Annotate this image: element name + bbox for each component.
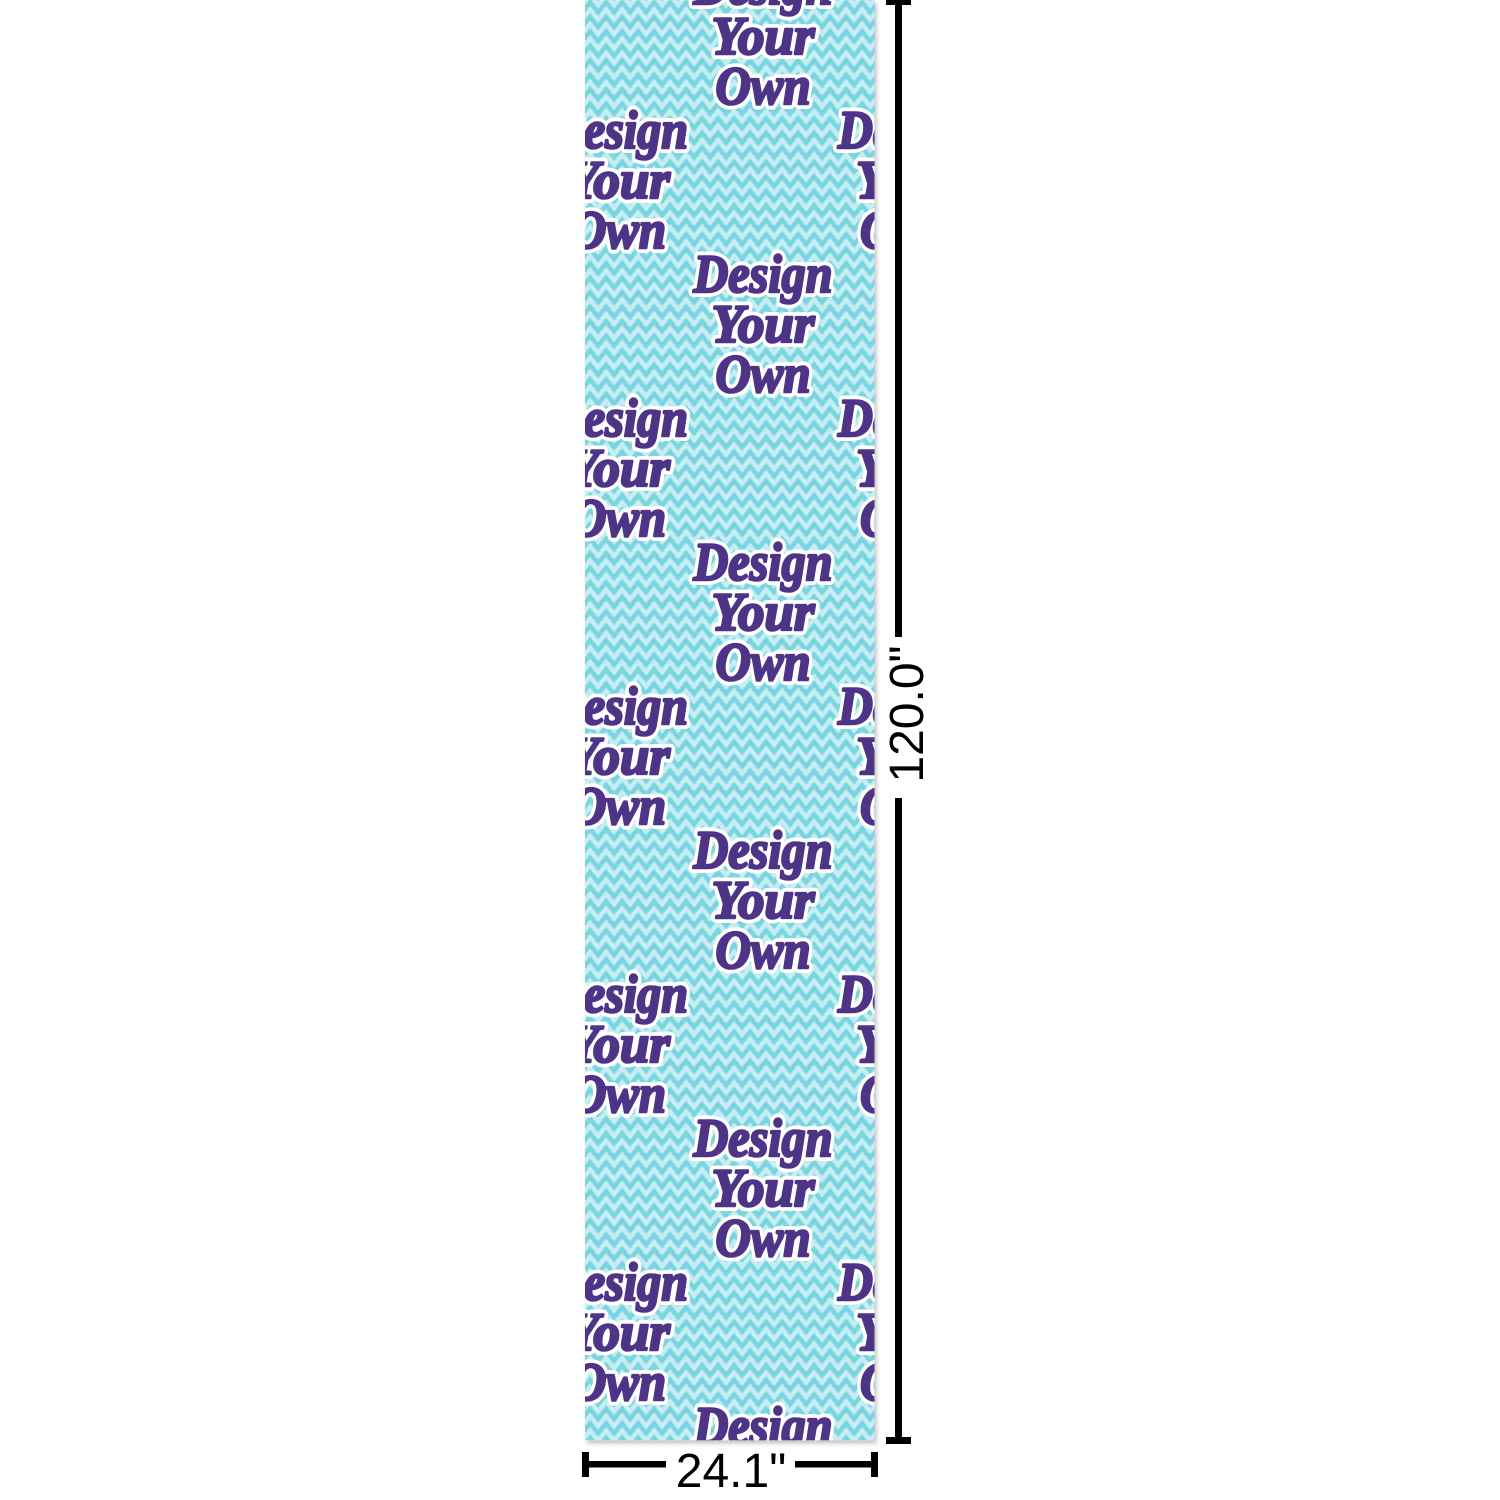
svg-text:120.0": 120.0" [881, 645, 934, 782]
svg-text:24.1": 24.1" [676, 1445, 786, 1498]
